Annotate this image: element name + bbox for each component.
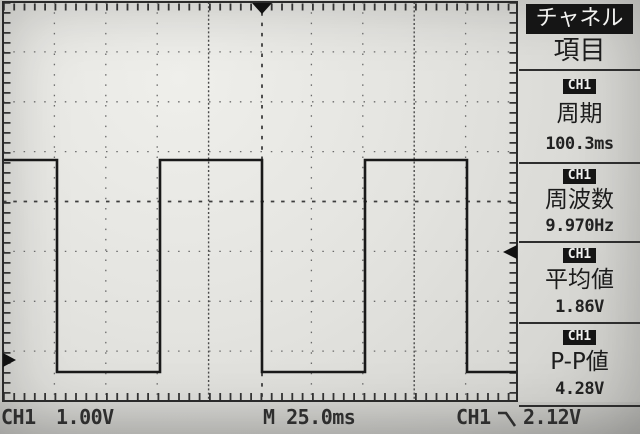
channel-badge: CH1 — [563, 330, 596, 345]
oscilloscope-screen: チャネル 項目 CH1 周期 100.3ms CH1 周波数 9.970Hz C… — [0, 0, 640, 434]
menu-box-peak-to-peak[interactable]: CH1 P-P値 4.28V — [519, 324, 640, 407]
measurement-label: 周期 — [557, 102, 603, 126]
menu-box-source-type[interactable]: チャネル 項目 — [519, 0, 640, 71]
menu-title-channel: チャネル — [526, 4, 633, 34]
menu-box-period[interactable]: CH1 周期 100.3ms — [519, 71, 640, 164]
measurement-label: 平均値 — [545, 268, 614, 292]
display-border — [3, 2, 517, 401]
scope-display — [0, 0, 520, 402]
ch1-ground-marker-icon[interactable] — [3, 353, 16, 367]
ch1-volts-per-div: 1.00V — [56, 405, 114, 429]
graticule-vertical-lines — [54, 2, 465, 401]
channel-badge: CH1 — [563, 169, 596, 184]
graticule-horizontal-lines — [3, 52, 517, 351]
status-bar: CH1 1.00V M 25.0ms CH1 2.12V — [0, 402, 640, 434]
trigger-position-marker-icon[interactable] — [252, 3, 272, 14]
ch1-label: CH1 — [1, 405, 36, 429]
border-ticks — [3, 2, 517, 401]
falling-edge-icon — [497, 409, 517, 429]
measurement-label: P-P値 — [550, 350, 609, 374]
dense-cursor-lines — [209, 2, 415, 401]
menu-box-mean[interactable]: CH1 平均値 1.86V — [519, 243, 640, 324]
measurement-value: 4.28V — [555, 379, 604, 399]
measurement-value: 100.3ms — [545, 134, 613, 154]
menu-box-frequency[interactable]: CH1 周波数 9.970Hz — [519, 164, 640, 243]
channel-badge: CH1 — [563, 248, 596, 263]
measure-menu-sidebar: チャネル 項目 CH1 周期 100.3ms CH1 周波数 9.970Hz C… — [519, 0, 640, 434]
menu-subtitle-item: 項目 — [553, 37, 605, 66]
trigger-level-marker-icon[interactable] — [503, 245, 517, 259]
ch1-waveform-trace — [4, 160, 516, 372]
measurement-label: 周波数 — [545, 188, 614, 212]
graticule-center-axes — [3, 2, 517, 401]
channel-badge: CH1 — [563, 79, 596, 94]
trigger-source-label: CH1 — [456, 405, 491, 429]
measurement-value: 9.970Hz — [545, 216, 613, 236]
timebase-readout: M 25.0ms — [263, 405, 355, 429]
trigger-level-readout: 2.12V — [523, 405, 581, 429]
measurement-value: 1.86V — [555, 297, 604, 317]
